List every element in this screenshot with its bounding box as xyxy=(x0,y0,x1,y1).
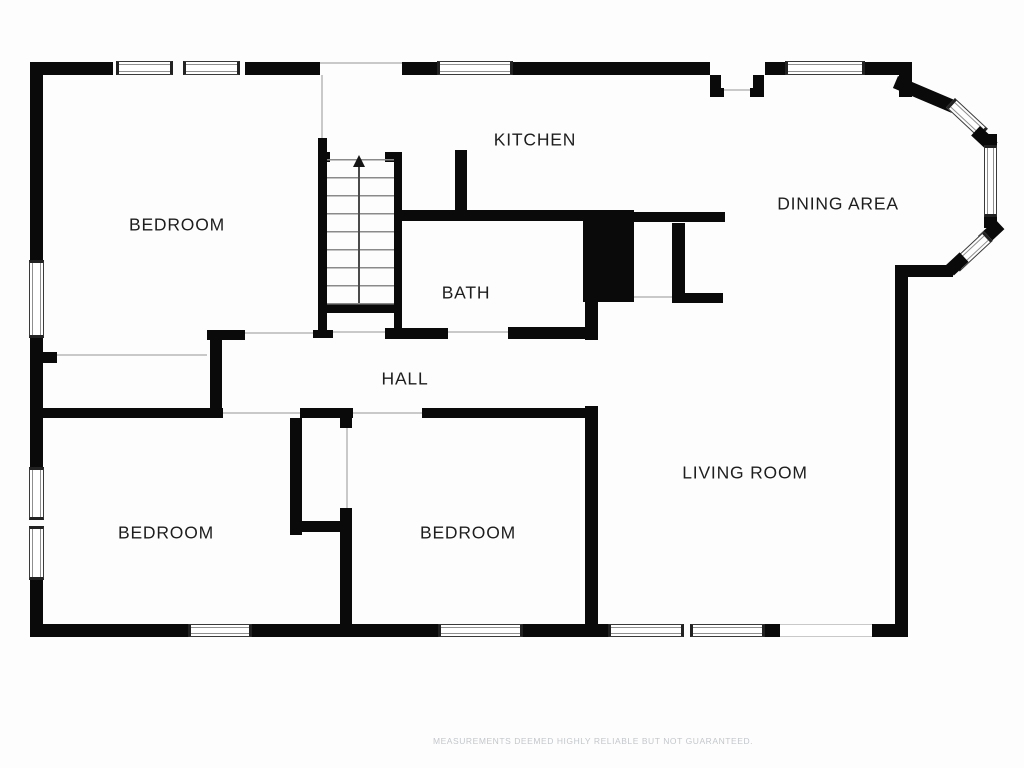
exterior-wall-top xyxy=(765,62,785,75)
hall-north-wall xyxy=(508,327,592,339)
closet-south-wall xyxy=(672,293,723,303)
window xyxy=(116,61,173,75)
closet-west-wall xyxy=(290,418,302,535)
bedroom-south-wall xyxy=(207,330,245,340)
bay-window-cap xyxy=(984,134,997,145)
entry-door-jamb xyxy=(750,88,764,97)
hall-south-wall xyxy=(422,408,593,418)
stairwell-open-edge-line xyxy=(321,75,323,138)
closet-door-opening-line xyxy=(634,296,672,298)
bay-window xyxy=(984,145,997,217)
room-label-hall: HALL xyxy=(382,369,429,390)
floorplan: BEDROOM KITCHEN DINING AREA BATH HALL LI… xyxy=(0,0,1024,768)
room-label-bedroom: BEDROOM xyxy=(129,215,225,236)
room-label-bedroom: BEDROOM xyxy=(118,523,214,544)
closet-wall-stub xyxy=(43,352,57,363)
bedroom-east-wall xyxy=(585,406,598,637)
closet-divider-wall xyxy=(672,223,685,293)
window xyxy=(437,61,513,75)
bath-north-wall xyxy=(395,210,583,221)
kitchen-partition-wall xyxy=(455,150,467,218)
disclaimer-text: MEASUREMENTS DEEMED HIGHLY RELIABLE BUT … xyxy=(433,736,753,746)
hall-south-wall xyxy=(300,408,353,418)
exterior-wall-bottom xyxy=(765,624,780,637)
window xyxy=(608,624,684,637)
exterior-wall-bottom xyxy=(872,624,908,637)
bath-door-opening-line xyxy=(448,331,508,333)
chimney-block xyxy=(583,210,634,302)
hall-north-wall xyxy=(385,328,448,339)
closet-north-wall xyxy=(634,212,725,222)
exterior-wall-right xyxy=(895,265,908,637)
bedroom-door-opening-line xyxy=(245,332,313,334)
window xyxy=(183,61,240,75)
entry-door-jamb xyxy=(710,88,724,97)
bedroom-door-opening-line xyxy=(353,412,422,414)
exterior-wall-top xyxy=(402,62,437,75)
room-label-kitchen: KITCHEN xyxy=(494,130,576,151)
stair-direction-line xyxy=(358,166,360,303)
exterior-wall-bottom xyxy=(30,624,188,637)
window xyxy=(29,467,44,520)
window xyxy=(690,624,765,637)
window xyxy=(29,260,44,338)
stair-treads xyxy=(327,159,394,305)
stair-up-arrow-icon xyxy=(353,155,365,167)
exterior-wall-top xyxy=(245,62,320,75)
room-label-bedroom: BEDROOM xyxy=(420,523,516,544)
room-label-bath: BATH xyxy=(442,283,491,304)
closet-door-opening-line xyxy=(57,354,207,356)
patio-door-opening xyxy=(780,624,872,637)
closet-east-wall xyxy=(340,418,352,428)
room-label-dining-area: DINING AREA xyxy=(777,194,899,215)
room-label-living-room: LIVING ROOM xyxy=(682,463,807,484)
closet-south-wall xyxy=(290,521,352,532)
exterior-wall-left xyxy=(30,338,43,467)
closet-east-wall xyxy=(210,340,222,408)
closet-door-opening-line xyxy=(346,428,348,508)
window xyxy=(785,61,865,75)
stair-wall-left xyxy=(318,138,327,330)
window xyxy=(188,624,252,637)
exterior-wall-top xyxy=(865,62,912,75)
entry-door-opening-line xyxy=(724,89,750,91)
stair-wall-foot xyxy=(313,330,333,338)
exterior-wall-left xyxy=(30,580,43,637)
bedroom-door-opening-line xyxy=(223,412,300,414)
exterior-wall-left xyxy=(30,62,43,260)
hall-south-wall xyxy=(30,408,223,418)
window xyxy=(438,624,523,637)
stair-landing-opening-line xyxy=(333,331,385,333)
stairwell-open-edge-line xyxy=(320,62,402,64)
window xyxy=(29,526,44,580)
exterior-wall-top xyxy=(513,62,710,75)
